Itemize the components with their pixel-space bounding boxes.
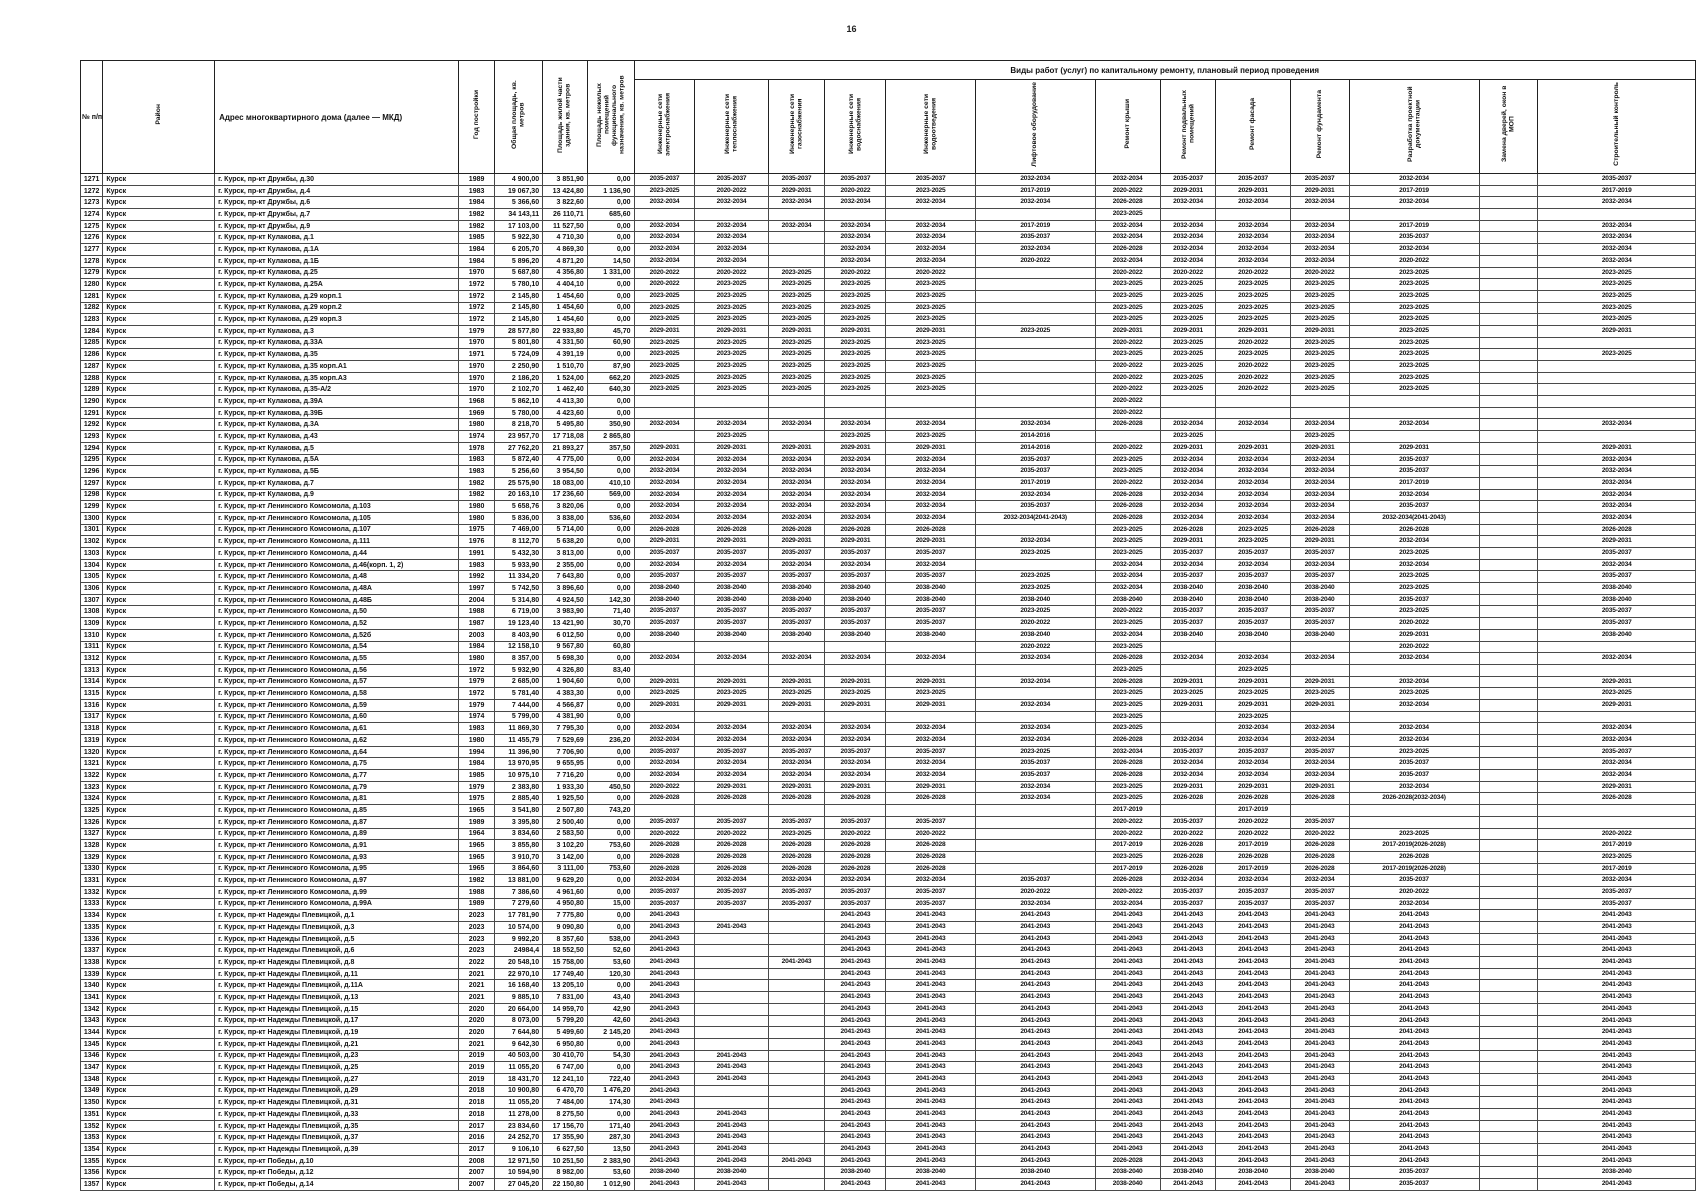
nonliving-area: 0,00: [587, 302, 634, 314]
district: Курск: [103, 1038, 215, 1050]
address: г. Курск, пр-кт Ленинского Комсомола, д.…: [215, 512, 459, 524]
repair-period: 2038-2040: [1538, 594, 1696, 606]
repair-period: 2041-2043: [1349, 922, 1479, 934]
table-row: 1304Курскг. Курск, пр-кт Ленинского Комс…: [81, 559, 1696, 571]
repair-period: [975, 407, 1095, 419]
total-area: 8 357,00: [495, 653, 543, 665]
year-built: 1982: [458, 209, 495, 221]
repair-period: 2017-2019: [1538, 863, 1696, 875]
repair-period: 2041-2043: [975, 1109, 1095, 1121]
repair-period: [1538, 431, 1696, 443]
row-number: 1335: [81, 922, 103, 934]
repair-period: 2041-2043: [825, 910, 886, 922]
repair-period: 2041-2043: [1538, 1097, 1696, 1109]
repair-period: [1216, 396, 1290, 408]
repair-period: 2035-2037: [1538, 174, 1696, 186]
district: Курск: [103, 255, 215, 267]
repair-period: 2017-2019: [1349, 477, 1479, 489]
living-area: 6 470,70: [543, 1085, 588, 1097]
repair-period: 2041-2043: [1160, 1027, 1216, 1039]
repair-period: 2020-2022: [1216, 828, 1290, 840]
row-number: 1356: [81, 1167, 103, 1179]
district: Курск: [103, 1050, 215, 1062]
repair-period: 2032-2034: [768, 758, 825, 770]
repair-period: 2017-2019: [1538, 840, 1696, 852]
nonliving-area: 0,00: [587, 770, 634, 782]
address: г. Курск, пр-кт Надежды Плевицкой, д.3: [215, 922, 459, 934]
repair-period: 2035-2037: [825, 618, 886, 630]
repair-period: [1216, 431, 1290, 443]
living-area: 17 749,40: [543, 968, 588, 980]
repair-period: 2023-2025: [1095, 302, 1160, 314]
year-built: 2023: [458, 933, 495, 945]
address: г. Курск, пр-кт Кулакова, д.29 корп.1: [215, 290, 459, 302]
repair-period: 2041-2043: [886, 1132, 975, 1144]
repair-period: 2020-2022: [1095, 442, 1160, 454]
total-area: 5 872,40: [495, 454, 543, 466]
repair-period: 2032-2034: [975, 197, 1095, 209]
repair-period: 2035-2037: [1349, 1179, 1479, 1191]
repair-period: [1538, 337, 1696, 349]
repair-period: 2041-2043: [1095, 1003, 1160, 1015]
repair-period: [1479, 945, 1538, 957]
repair-period: 2026-2028(2032-2034): [1349, 793, 1479, 805]
repair-period: [1479, 1155, 1538, 1167]
nonliving-area: 53,60: [587, 957, 634, 969]
repair-period: 2032-2034: [695, 559, 768, 571]
repair-period: [695, 1027, 768, 1039]
repair-period: 2041-2043: [634, 1073, 695, 1085]
repair-period: 2029-2031: [1538, 325, 1696, 337]
repair-period: 2020-2022: [886, 828, 975, 840]
repair-period: 2041-2043: [1538, 1179, 1696, 1191]
repair-period: [1479, 816, 1538, 828]
repair-period: [1479, 910, 1538, 922]
repair-period: 2041-2043: [1290, 1015, 1349, 1027]
repair-period: 2032-2034: [1290, 489, 1349, 501]
table-body: 1271Курскг. Курск, пр-кт Дружбы, д.30198…: [81, 174, 1696, 1191]
repair-period: 2041-2043: [1160, 910, 1216, 922]
repair-period: 2032-2034: [1538, 197, 1696, 209]
repair-period: 2041-2043: [886, 1050, 975, 1062]
row-number: 1311: [81, 641, 103, 653]
repair-period: 2038-2040: [1160, 629, 1216, 641]
repair-period: 2023-2025: [1095, 524, 1160, 536]
repair-period: 2041-2043: [886, 1015, 975, 1027]
repair-period: 2032-2034: [1290, 244, 1349, 256]
address: г. Курск, пр-кт Надежды Плевицкой, д.19: [215, 1027, 459, 1039]
repair-period: 2041-2043: [825, 1038, 886, 1050]
nonliving-area: 0,00: [587, 980, 634, 992]
address: г. Курск, пр-кт Кулакова, д.1: [215, 232, 459, 244]
repair-period: 2041-2043: [634, 957, 695, 969]
repair-period: 2041-2043: [634, 992, 695, 1004]
row-number: 1349: [81, 1085, 103, 1097]
repair-period: [1479, 419, 1538, 431]
repair-period: [1290, 805, 1349, 817]
repair-period: 2023-2025: [886, 688, 975, 700]
repair-period: 2035-2037: [1349, 875, 1479, 887]
repair-period: 2032-2034: [886, 653, 975, 665]
repair-period: 2041-2043: [975, 1085, 1095, 1097]
repair-period: [1479, 1097, 1538, 1109]
repair-period: 2023-2025: [1160, 279, 1216, 291]
repair-period: 2041-2043: [1216, 1003, 1290, 1015]
row-number: 1280: [81, 279, 103, 291]
repair-period: 2029-2031: [825, 699, 886, 711]
repair-period: 2032-2034(2041-2043): [1349, 512, 1479, 524]
repair-period: [1160, 664, 1216, 676]
repair-period: [1479, 454, 1538, 466]
repair-period: 2041-2043: [1538, 1120, 1696, 1132]
column-header: Площадь нежилых помещений функциональног…: [587, 61, 634, 174]
repair-period: 2041-2043: [1349, 1050, 1479, 1062]
repair-period: [768, 1109, 825, 1121]
year-built: 1983: [458, 559, 495, 571]
repair-period: 2032-2034: [975, 793, 1095, 805]
living-area: 2 507,80: [543, 805, 588, 817]
repair-period: 2041-2043: [825, 1015, 886, 1027]
repair-period: [1538, 384, 1696, 396]
address: г. Курск, пр-кт Ленинского Комсомола, д.…: [215, 629, 459, 641]
nonliving-area: 287,30: [587, 1132, 634, 1144]
district: Курск: [103, 442, 215, 454]
repair-period: [1479, 244, 1538, 256]
repair-period: 2041-2043: [1216, 945, 1290, 957]
table-row: 1317Курскг. Курск, пр-кт Ленинского Комс…: [81, 711, 1696, 723]
repair-period: [1479, 442, 1538, 454]
repair-period: 2029-2031: [1160, 325, 1216, 337]
table-row: 1280Курскг. Курск, пр-кт Кулакова, д.25А…: [81, 279, 1696, 291]
repair-period: 2041-2043: [1290, 1062, 1349, 1074]
address: г. Курск, пр-кт Кулакова, д.7: [215, 477, 459, 489]
repair-period: 2032-2034: [1216, 559, 1290, 571]
district: Курск: [103, 1097, 215, 1109]
repair-period: 2032-2034: [825, 232, 886, 244]
repair-period: [768, 244, 825, 256]
district: Курск: [103, 396, 215, 408]
living-area: 1 462,40: [543, 384, 588, 396]
repair-period: 2041-2043: [1290, 992, 1349, 1004]
living-area: 17 156,70: [543, 1120, 588, 1132]
repair-period: 2032-2034: [1290, 723, 1349, 735]
repair-period: 2032-2034: [1290, 255, 1349, 267]
year-built: 1972: [458, 290, 495, 302]
repair-period: 2023-2025: [695, 361, 768, 373]
living-area: 22 933,80: [543, 325, 588, 337]
table-row: 1303Курскг. Курск, пр-кт Ленинского Комс…: [81, 548, 1696, 560]
repair-period: 2041-2043: [1216, 1109, 1290, 1121]
total-area: 11 396,90: [495, 746, 543, 758]
repair-period: 2029-2031: [886, 699, 975, 711]
repair-period: 2035-2037: [886, 606, 975, 618]
total-area: 27 762,20: [495, 442, 543, 454]
repair-period: 2041-2043: [695, 1109, 768, 1121]
repair-period: 2029-2031: [1160, 781, 1216, 793]
row-number: 1337: [81, 945, 103, 957]
address: г. Курск, пр-кт Ленинского Комсомола, д.…: [215, 828, 459, 840]
repair-period: 2035-2037: [975, 466, 1095, 478]
district: Курск: [103, 723, 215, 735]
address: г. Курск, пр-кт Ленинского Комсомола, д.…: [215, 805, 459, 817]
repair-period: 2041-2043: [886, 933, 975, 945]
living-area: 4 391,19: [543, 349, 588, 361]
repair-period: 2020-2022: [1095, 396, 1160, 408]
repair-period: [1479, 886, 1538, 898]
total-area: 3 395,80: [495, 816, 543, 828]
table-row: 1349Курскг. Курск, пр-кт Надежды Плевицк…: [81, 1085, 1696, 1097]
total-area: 2 186,20: [495, 372, 543, 384]
total-area: 11 278,00: [495, 1109, 543, 1121]
address: г. Курск, пр-кт Надежды Плевицкой, д.6: [215, 945, 459, 957]
repair-period: [634, 396, 695, 408]
repair-period: 2023-2025: [1160, 361, 1216, 373]
repair-period: 2032-2034: [1160, 735, 1216, 747]
year-built: 1989: [458, 174, 495, 186]
repair-period: 2035-2037: [1160, 174, 1216, 186]
repair-period: [1479, 489, 1538, 501]
repair-period: [1479, 875, 1538, 887]
repair-period: 2032-2034: [1290, 419, 1349, 431]
document-page: 16 № п/пРайонАдрес многоквартирного дома…: [0, 0, 1703, 1200]
living-area: 4 356,80: [543, 267, 588, 279]
repair-period: 2032-2034: [634, 735, 695, 747]
address: г. Курск, пр-кт Надежды Плевицкой, д.15: [215, 1003, 459, 1015]
repair-period: 2023-2025: [1095, 723, 1160, 735]
repair-period: 2032-2034(2041-2043): [975, 512, 1095, 524]
total-area: 5 933,90: [495, 559, 543, 571]
nonliving-area: 71,40: [587, 606, 634, 618]
repair-period: 2041-2043: [1538, 1050, 1696, 1062]
district: Курск: [103, 1073, 215, 1085]
repair-period: [825, 407, 886, 419]
work-column-header: Инженерные сети водоотведения: [886, 80, 975, 174]
address: г. Курск, пр-кт Ленинского Комсомола, д.…: [215, 898, 459, 910]
repair-period: 2023-2025: [1290, 431, 1349, 443]
repair-period: 2020-2022: [1095, 337, 1160, 349]
table-row: 1351Курскг. Курск, пр-кт Надежды Плевицк…: [81, 1109, 1696, 1121]
repair-period: 2032-2034: [634, 454, 695, 466]
repair-period: 2035-2037: [1538, 886, 1696, 898]
repair-period: 2023-2025: [695, 279, 768, 291]
address: г. Курск, пр-кт Надежды Плевицкой, д.35: [215, 1120, 459, 1132]
repair-period: 2020-2022: [634, 781, 695, 793]
repair-period: [975, 851, 1095, 863]
repair-period: 2023-2025: [634, 290, 695, 302]
repair-period: 2029-2031: [768, 185, 825, 197]
repair-period: [695, 1015, 768, 1027]
repair-period: 2035-2037: [695, 606, 768, 618]
repair-period: 2032-2034: [825, 501, 886, 513]
repair-period: [1160, 711, 1216, 723]
repair-period: 2026-2028: [1538, 524, 1696, 536]
repair-period: 2041-2043: [1216, 1144, 1290, 1156]
repair-period: 2032-2034: [1216, 466, 1290, 478]
repair-period: 2023-2025: [634, 688, 695, 700]
repair-period: [1479, 1109, 1538, 1121]
district: Курск: [103, 711, 215, 723]
living-area: 2 500,40: [543, 816, 588, 828]
repair-period: 2032-2034: [1349, 536, 1479, 548]
repair-period: 2026-2028: [1216, 793, 1290, 805]
repair-period: 2035-2037: [1290, 618, 1349, 630]
repair-period: 2032-2034: [1349, 174, 1479, 186]
repair-period: 2038-2040: [634, 594, 695, 606]
repair-period: 2032-2034: [1290, 512, 1349, 524]
year-built: 1991: [458, 548, 495, 560]
repair-period: 2026-2028: [695, 840, 768, 852]
repair-period: 2041-2043: [1160, 1062, 1216, 1074]
total-area: 5 932,90: [495, 664, 543, 676]
repair-period: 2032-2034: [1349, 559, 1479, 571]
repair-period: 2041-2043: [975, 957, 1095, 969]
repair-period: 2041-2043: [886, 1179, 975, 1191]
repair-period: 2035-2037: [768, 816, 825, 828]
repair-period: 2041-2043: [1216, 922, 1290, 934]
repair-period: 2032-2034: [825, 197, 886, 209]
repair-period: 2029-2031: [768, 442, 825, 454]
nonliving-area: 0,00: [587, 407, 634, 419]
repair-period: 2032-2034: [695, 477, 768, 489]
address: г. Курск, пр-кт Ленинского Комсомола, д.…: [215, 594, 459, 606]
repair-period: 2032-2034: [975, 781, 1095, 793]
row-number: 1288: [81, 372, 103, 384]
repair-period: 2023-2025: [695, 314, 768, 326]
repair-period: 2026-2028: [1095, 676, 1160, 688]
repair-period: 2032-2034: [1216, 255, 1290, 267]
address: г. Курск, пр-кт Кулакова, д.43: [215, 431, 459, 443]
repair-period: 2020-2022: [1095, 477, 1160, 489]
row-number: 1346: [81, 1050, 103, 1062]
repair-period: 2038-2040: [1216, 583, 1290, 595]
repair-period: 2026-2028: [1095, 489, 1160, 501]
repair-period: 2041-2043: [1095, 1132, 1160, 1144]
repair-period: 2026-2028: [886, 863, 975, 875]
repair-period: 2029-2031: [695, 325, 768, 337]
repair-period: 2041-2043: [1538, 910, 1696, 922]
repair-period: 2026-2028: [1095, 197, 1160, 209]
repair-period: 2038-2040: [1290, 583, 1349, 595]
repair-period: [975, 711, 1095, 723]
repair-period: 2020-2022: [1216, 361, 1290, 373]
page-number: 16: [0, 24, 1703, 34]
repair-period: 2041-2043: [634, 945, 695, 957]
repair-period: [886, 209, 975, 221]
repair-period: 2041-2043: [695, 1062, 768, 1074]
repair-period: [1349, 209, 1479, 221]
repair-period: [768, 968, 825, 980]
year-built: 2007: [458, 1167, 495, 1179]
repair-period: 2026-2028: [1349, 524, 1479, 536]
year-built: 1982: [458, 220, 495, 232]
living-area: 7 716,20: [543, 770, 588, 782]
total-area: 5 801,80: [495, 337, 543, 349]
row-number: 1290: [81, 396, 103, 408]
repair-period: 2032-2034: [695, 653, 768, 665]
repair-period: [1349, 711, 1479, 723]
repair-period: 2029-2031: [695, 781, 768, 793]
repair-period: 2032-2034: [634, 220, 695, 232]
repair-period: 2023-2025: [1349, 349, 1479, 361]
address: г. Курск, пр-кт Кулакова, д.3: [215, 325, 459, 337]
district: Курск: [103, 419, 215, 431]
repair-period: 2035-2037: [695, 886, 768, 898]
repair-period: 2035-2037: [886, 898, 975, 910]
repair-period: 2032-2034: [1216, 770, 1290, 782]
living-area: 3 102,20: [543, 840, 588, 852]
repair-period: [695, 711, 768, 723]
repair-period: 2032-2034: [1216, 232, 1290, 244]
repair-period: 2029-2031: [634, 676, 695, 688]
repair-period: 2023-2025: [695, 349, 768, 361]
address: г. Курск, пр-кт Ленинского Комсомола, д.…: [215, 618, 459, 630]
repair-period: 2041-2043: [1349, 1109, 1479, 1121]
repair-period: 2029-2031: [768, 536, 825, 548]
repair-period: 2041-2043: [1160, 1132, 1216, 1144]
total-area: 3 855,80: [495, 840, 543, 852]
repair-period: 2041-2043: [1290, 933, 1349, 945]
table-row: 1319Курскг. Курск, пр-кт Ленинского Комс…: [81, 735, 1696, 747]
repair-period: 2041-2043: [825, 1003, 886, 1015]
district: Курск: [103, 676, 215, 688]
repair-period: 2035-2037: [825, 606, 886, 618]
repair-period: 2032-2034: [1095, 629, 1160, 641]
repair-period: 2032-2034: [1349, 898, 1479, 910]
year-built: 1983: [458, 466, 495, 478]
repair-period: [1479, 781, 1538, 793]
district: Курск: [103, 1085, 215, 1097]
repair-period: [1479, 699, 1538, 711]
repair-period: 2035-2037: [695, 898, 768, 910]
repair-period: 2035-2037: [695, 746, 768, 758]
repair-period: 2023-2025: [1160, 431, 1216, 443]
repair-period: [768, 255, 825, 267]
repair-period: 2023-2025: [886, 302, 975, 314]
repair-period: 2023-2025: [1538, 290, 1696, 302]
total-area: 34 143,11: [495, 209, 543, 221]
repair-period: [1479, 980, 1538, 992]
district: Курск: [103, 840, 215, 852]
nonliving-area: 53,60: [587, 1167, 634, 1179]
row-number: 1309: [81, 618, 103, 630]
repair-period: [1216, 407, 1290, 419]
repair-period: 2035-2037: [1216, 898, 1290, 910]
repair-period: [1349, 407, 1479, 419]
repair-period: 2023-2025: [975, 325, 1095, 337]
repair-period: 2023-2025: [1095, 793, 1160, 805]
table-row: 1279Курскг. Курск, пр-кт Кулакова, д.251…: [81, 267, 1696, 279]
year-built: 1964: [458, 828, 495, 840]
repair-period: [975, 559, 1095, 571]
repair-period: [1479, 1179, 1538, 1191]
year-built: 1965: [458, 863, 495, 875]
repair-period: 2041-2043: [825, 945, 886, 957]
row-number: 1277: [81, 244, 103, 256]
repair-period: 2026-2028: [1160, 524, 1216, 536]
repair-period: 2032-2034: [975, 653, 1095, 665]
repair-period: 2032-2034: [975, 419, 1095, 431]
total-area: 5 256,60: [495, 466, 543, 478]
repair-period: 2035-2037: [695, 816, 768, 828]
repair-period: 2035-2037: [634, 618, 695, 630]
address: г. Курск, пр-кт Ленинского Комсомола, д.…: [215, 524, 459, 536]
repair-period: [1479, 185, 1538, 197]
repair-period: 2038-2040: [768, 583, 825, 595]
repair-period: 2032-2034: [1160, 255, 1216, 267]
repair-period: 2041-2043: [634, 1062, 695, 1074]
repair-period: 2041-2043: [1290, 1085, 1349, 1097]
table-row: 1334Курскг. Курск, пр-кт Надежды Плевицк…: [81, 910, 1696, 922]
